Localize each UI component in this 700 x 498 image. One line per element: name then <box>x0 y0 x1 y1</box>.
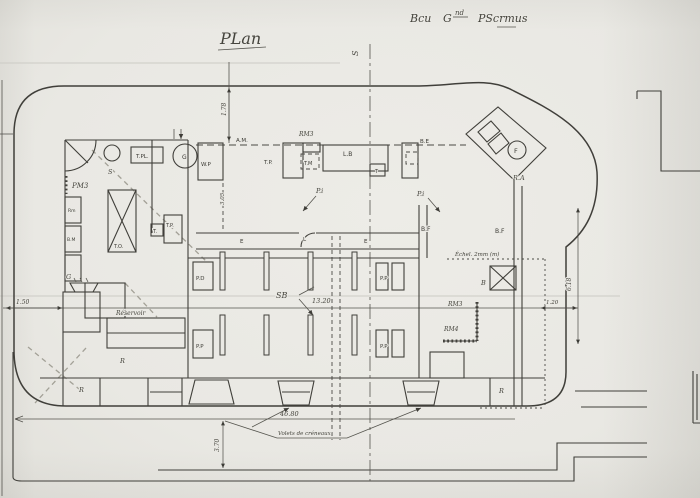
stove-circle <box>104 145 120 161</box>
label-t-p: T.P. <box>165 223 174 229</box>
p-i-left-arrow <box>303 196 316 211</box>
label-b-room: B <box>480 279 486 287</box>
dim-ditch-width: 3.70 <box>214 438 221 452</box>
facade-dimension-line <box>15 416 515 422</box>
dimensions: 1.50 1.78 3.05 1.20 6.18 46.80 3.70 <box>6 88 578 468</box>
small-dashed-box <box>406 152 418 164</box>
label-f: F <box>514 147 518 155</box>
bottom-wall: R R <box>40 332 545 406</box>
label-r-mid: R <box>119 357 125 365</box>
header-annotations: PLan Bcu G nd PScrmus <box>218 9 528 50</box>
rail-slot <box>264 252 269 290</box>
plan-drawing: S T.PL. G PM3 Rm B.M T.O. T. T.P. A.M. W… <box>0 0 700 498</box>
annotation-word3: PScrmus <box>477 12 528 25</box>
dim-casemate-width: 13.20 <box>312 297 331 305</box>
label-b-f-left: B.F <box>421 226 431 233</box>
label-b-f-right: B.F <box>495 228 505 235</box>
label-e-right: E <box>364 239 368 245</box>
page-title: PLan <box>219 29 261 48</box>
dotted-cover-outline <box>447 259 545 408</box>
label-rm3-right: RM3 <box>447 301 463 308</box>
rail-slot <box>220 315 225 355</box>
pier <box>392 263 404 290</box>
label-t-small: T. <box>152 229 157 235</box>
label-stove: S <box>108 168 113 176</box>
embrasure-inner-box <box>488 133 509 154</box>
embrasure-outline <box>466 107 546 180</box>
label-p-i-left: P.i <box>315 187 323 195</box>
label-locker-bottom: B.M <box>67 237 76 243</box>
note-echelle: Échel. 2mm (m) <box>454 250 499 258</box>
label-pier-se: P.P <box>380 344 388 350</box>
p-i-right-arrow <box>428 198 440 212</box>
right-walls <box>490 180 522 406</box>
label-t: T <box>374 169 379 175</box>
label-pier-ne: P.P <box>380 276 388 282</box>
label-pier-nw: P.D <box>196 276 204 282</box>
rail-slot <box>352 315 357 355</box>
air-intake-arrows <box>174 129 181 139</box>
label-table: T.O. <box>113 244 124 250</box>
dim-right-offset: 1.20 <box>546 300 559 306</box>
l-b-room <box>323 145 388 171</box>
pencil-lines <box>28 150 207 403</box>
rear-door-opening <box>189 380 234 404</box>
ditch-outer-wall <box>13 352 647 481</box>
left-room-walls <box>65 140 188 378</box>
left-room: S T.PL. G PM3 Rm B.M T.O. T. T.P. <box>65 129 197 378</box>
entrance-works: A.M. W.P T.P. T.M RM3 L.B T B.E P.i P.i <box>196 131 466 232</box>
reservoir-assembly: Réservoir G <box>63 273 185 348</box>
section-trace-lines <box>332 236 340 440</box>
t-p-box <box>164 215 182 243</box>
entrance-pier <box>402 143 418 178</box>
rail-slot <box>308 315 313 355</box>
pier <box>392 330 404 357</box>
table-cross <box>108 190 136 252</box>
rail-slot <box>220 252 225 290</box>
embrasure-block: F R.A <box>466 107 546 182</box>
label-pm3: PM3 <box>71 182 89 190</box>
label-p-i-right: P.i <box>416 190 424 198</box>
label-locker-top: Rm <box>68 208 76 214</box>
label-rm4: RM4 <box>443 326 459 333</box>
label-a-m: A.M. <box>236 138 248 144</box>
label-r-left: R <box>78 386 84 394</box>
dim-top-wall: 1.78 <box>221 102 228 116</box>
embrasure-inner-box <box>478 121 500 142</box>
t-m-box <box>303 143 320 152</box>
dim-left-wall: 1.50 <box>16 299 30 306</box>
label-pier-sw: P.P <box>196 344 204 350</box>
label-g-annex: G <box>66 273 71 281</box>
drawing-sheet: S T.PL. G PM3 Rm B.M T.O. T. T.P. A.M. W… <box>0 0 700 498</box>
b-room-cross <box>490 266 516 290</box>
rail-slot <box>308 252 313 290</box>
rail-slot <box>264 315 269 355</box>
section-mark: S <box>351 50 360 56</box>
label-b-e: B.E <box>420 139 430 145</box>
top-right-trench-steps <box>637 91 700 171</box>
label-sb: SB <box>276 291 287 300</box>
label-fan: G <box>182 154 187 161</box>
label-l-door: L <box>303 237 307 243</box>
rear-rooms-walls <box>63 332 188 406</box>
g-annex <box>70 283 98 292</box>
annotation-word2: G <box>443 12 452 25</box>
door-swing-arc <box>65 140 96 171</box>
label-t-p-pier: T.P. <box>263 160 273 166</box>
entrance-pier <box>283 143 303 178</box>
crenel-left <box>278 381 314 405</box>
label-l-b: L.B <box>343 151 352 158</box>
label-t-m: T.M <box>303 161 312 167</box>
step-block <box>430 352 464 378</box>
dim-entrance-depth: 3.05 <box>220 192 226 205</box>
dim-right-height: 6.18 <box>566 277 573 291</box>
label-reservoir: Réservoir <box>115 310 146 317</box>
label-rm3-top: RM3 <box>298 131 314 138</box>
annotation-word2-sup: nd <box>455 9 465 17</box>
label-t-pl: T.PL. <box>135 154 149 160</box>
label-e-left: E <box>240 239 244 245</box>
annex-box <box>63 292 100 332</box>
note-volets: Volets de créneaux <box>278 430 332 437</box>
right-road-lines <box>575 391 647 407</box>
right-rooms: B RM3 RM4 R <box>430 180 522 406</box>
rail-slot <box>352 252 357 290</box>
pencil-diagonal-cross <box>28 347 86 403</box>
right-edge-trench <box>693 371 700 423</box>
crenel-right <box>403 381 439 405</box>
notes: Volets de créneaux Échel. 2mm (m) S <box>225 50 499 438</box>
label-r-right: R <box>498 387 504 395</box>
annotation-word1: Bcu <box>409 12 431 25</box>
label-w-p: W.P <box>201 162 212 168</box>
corridor: E E L <box>196 233 419 249</box>
